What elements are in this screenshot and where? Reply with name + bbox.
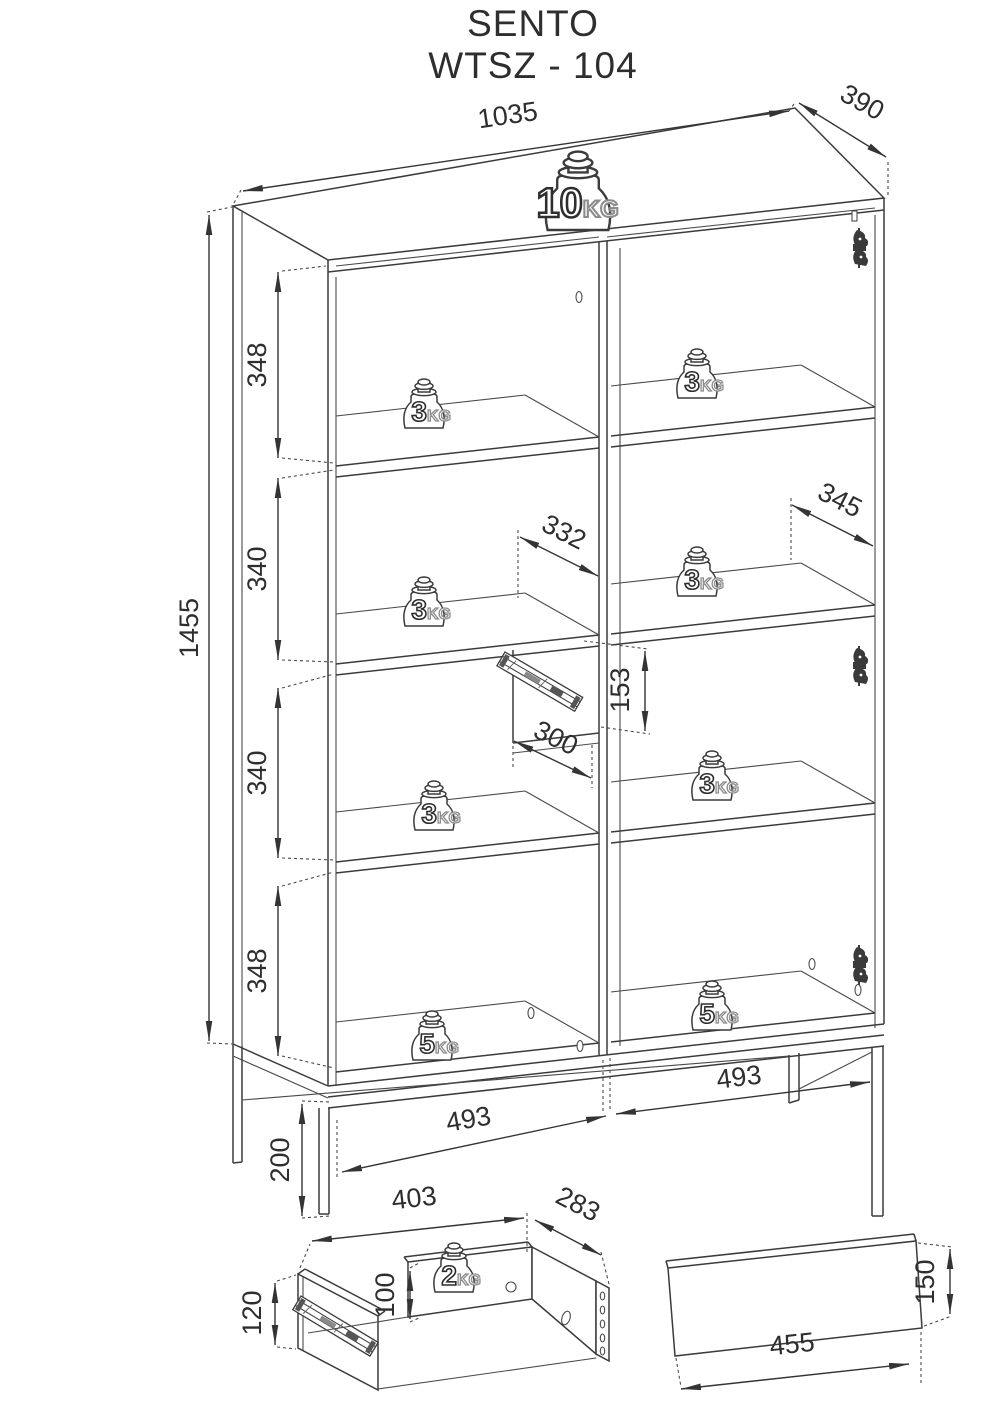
weight-5kg: 5 KG: [692, 981, 739, 1030]
drawing-title: SENTO WTSZ - 104: [428, 3, 637, 86]
dim-top-depth: 390: [835, 78, 889, 126]
dim-drawer-opening-height: 153: [605, 667, 635, 712]
dim-section-1: 348: [242, 342, 272, 387]
weight-value: 10: [537, 179, 583, 226]
dim-drawer-inner-height: 100: [370, 1272, 400, 1317]
weight-value: 5: [699, 998, 715, 1029]
cabinet-outline: [233, 108, 884, 1108]
dim-section-4: 348: [242, 948, 272, 993]
dim-section-3: 340: [242, 750, 272, 795]
dim-top-width: 1035: [476, 96, 540, 134]
front-panel-detail: 150 455: [666, 1234, 952, 1389]
technical-drawing: SENTO WTSZ - 104: [0, 0, 1000, 1414]
dim-total-height: 1455: [174, 598, 204, 658]
right-column-shelves: [611, 365, 875, 1042]
weight-unit: KG: [583, 196, 619, 223]
weight-value: 3: [684, 564, 700, 595]
product-code: WTSZ - 104: [428, 45, 637, 86]
dim-drawer-opening-width: 300: [529, 715, 583, 762]
dim-drawer-depth: 283: [551, 1180, 605, 1227]
weight-unit: KG: [427, 606, 451, 623]
product-name: SENTO: [467, 3, 599, 44]
hinge-icon-top: [853, 228, 868, 268]
weight-3kg: 3 KG: [677, 547, 724, 596]
hinge-icon-middle: [853, 646, 868, 686]
weight-unit: KG: [715, 780, 739, 797]
dim-bottom-right-width: 493: [715, 1059, 763, 1094]
weight-5kg: 5 KG: [412, 1011, 459, 1060]
hinge-icon-bottom: [853, 945, 868, 985]
dim-leg-height: 200: [265, 1137, 295, 1182]
weight-unit: KG: [700, 378, 724, 395]
base-frame: [233, 1044, 883, 1216]
weight-unit: KG: [715, 1010, 739, 1027]
dim-panel-width: 455: [768, 1327, 816, 1362]
weight-value: 5: [419, 1028, 435, 1059]
weight-unit: KG: [437, 810, 461, 827]
drawer-detail: 2 KG 403 283 120 100: [237, 1180, 609, 1390]
weight-unit: KG: [700, 576, 724, 593]
load-capacity-weights: 10 KG 3 KG 3 KG 3 KG 5 KG 3 KG: [404, 152, 739, 1060]
weight-3kg: 3 KG: [692, 751, 739, 800]
weight-value: 3: [421, 798, 437, 829]
weight-value: 3: [411, 594, 427, 625]
weight-3kg: 3 KG: [677, 349, 724, 398]
weight-unit: KG: [457, 1272, 481, 1289]
dim-drawer-height: 120: [237, 1290, 267, 1335]
weight-3kg: 3 KG: [414, 781, 461, 830]
panel-holes: [528, 211, 861, 1052]
dim-section-2: 340: [242, 546, 272, 591]
dim-panel-height: 150: [910, 1259, 940, 1304]
dim-bottom-left-width: 493: [444, 1100, 494, 1137]
dim-left-interior-width: 332: [537, 508, 591, 555]
dim-right-interior-width: 345: [813, 476, 867, 523]
weight-value: 3: [684, 366, 700, 397]
weight-unit: KG: [427, 408, 451, 425]
weight-value: 3: [411, 396, 427, 427]
weight-value: 2: [441, 1260, 457, 1291]
weight-value: 3: [699, 768, 715, 799]
weight-unit: KG: [435, 1040, 459, 1057]
dim-drawer-width: 403: [390, 1181, 438, 1216]
technical-drawing-page: SENTO WTSZ - 104: [0, 0, 1000, 1414]
drawer-slide-rail-icon: [497, 652, 583, 711]
